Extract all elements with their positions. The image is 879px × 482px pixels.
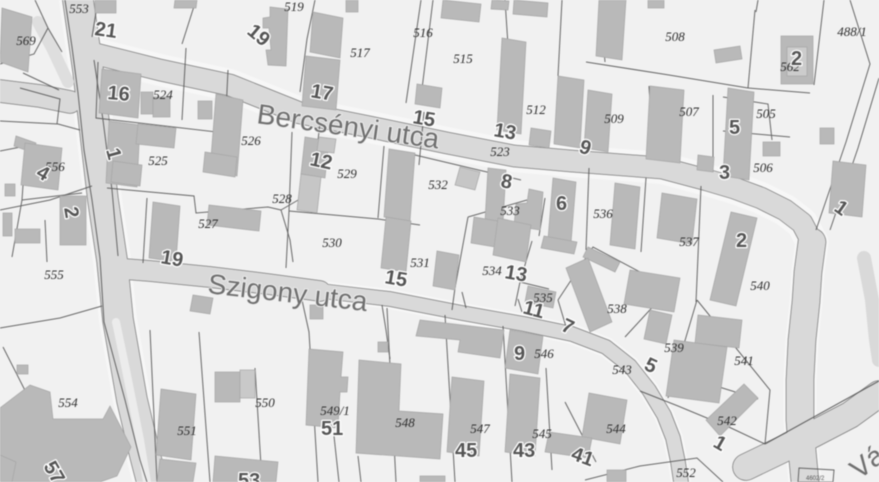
svg-text:519: 519 [284,0,304,14]
svg-text:541: 541 [734,353,754,368]
svg-text:531: 531 [410,255,430,270]
svg-text:538: 538 [607,301,627,316]
svg-text:53: 53 [238,470,260,482]
svg-text:507: 507 [679,104,699,119]
svg-text:6: 6 [556,193,567,215]
svg-text:554: 554 [58,395,78,410]
svg-text:550: 550 [255,395,275,410]
svg-text:525: 525 [148,153,168,168]
svg-text:545: 545 [532,426,552,441]
svg-text:528: 528 [272,191,292,206]
svg-text:506: 506 [753,160,773,175]
svg-text:516: 516 [413,25,433,40]
svg-text:526: 526 [241,133,261,148]
svg-text:45: 45 [455,440,477,462]
svg-text:2: 2 [791,48,802,70]
svg-text:547: 547 [470,421,490,436]
svg-text:523: 523 [490,144,510,159]
svg-text:546: 546 [534,346,554,361]
svg-text:515: 515 [453,51,473,66]
svg-text:532: 532 [428,177,448,192]
svg-text:543: 543 [612,362,632,377]
svg-text:524: 524 [153,87,173,102]
svg-text:548: 548 [395,415,415,430]
svg-text:530: 530 [322,235,342,250]
svg-text:9: 9 [514,343,525,365]
svg-text:549/1: 549/1 [320,403,350,418]
svg-text:13: 13 [503,261,529,287]
svg-text:540: 540 [750,278,770,293]
svg-text:533: 533 [500,203,520,218]
svg-text:552: 552 [676,465,696,480]
svg-text:4602/2: 4602/2 [806,476,825,482]
svg-text:553: 553 [69,1,89,16]
svg-text:537: 537 [679,234,699,249]
svg-text:512: 512 [526,102,546,117]
svg-text:15: 15 [411,106,437,132]
svg-text:517: 517 [350,45,370,60]
svg-text:555: 555 [44,267,64,282]
svg-text:16: 16 [107,82,131,106]
svg-text:5: 5 [729,117,740,139]
svg-text:488/1: 488/1 [837,24,867,39]
svg-text:569: 569 [16,33,36,48]
svg-text:551: 551 [177,423,197,438]
svg-text:534: 534 [482,263,502,278]
svg-text:542: 542 [717,413,737,428]
svg-text:508: 508 [665,29,685,44]
svg-text:2: 2 [736,230,747,252]
svg-text:13: 13 [492,119,518,145]
svg-text:21: 21 [93,18,118,43]
svg-text:15: 15 [383,266,409,292]
svg-text:544: 544 [606,421,626,436]
svg-text:17: 17 [309,80,335,106]
svg-text:509: 509 [604,111,624,126]
svg-text:43: 43 [513,440,535,462]
svg-text:505: 505 [756,106,776,121]
svg-text:12: 12 [308,148,334,174]
svg-text:527: 527 [198,216,218,231]
svg-text:536: 536 [593,206,613,221]
svg-text:3: 3 [719,162,730,184]
svg-text:529: 529 [337,166,357,181]
svg-text:539: 539 [664,340,684,355]
svg-text:19: 19 [159,246,185,272]
svg-text:51: 51 [321,418,343,440]
